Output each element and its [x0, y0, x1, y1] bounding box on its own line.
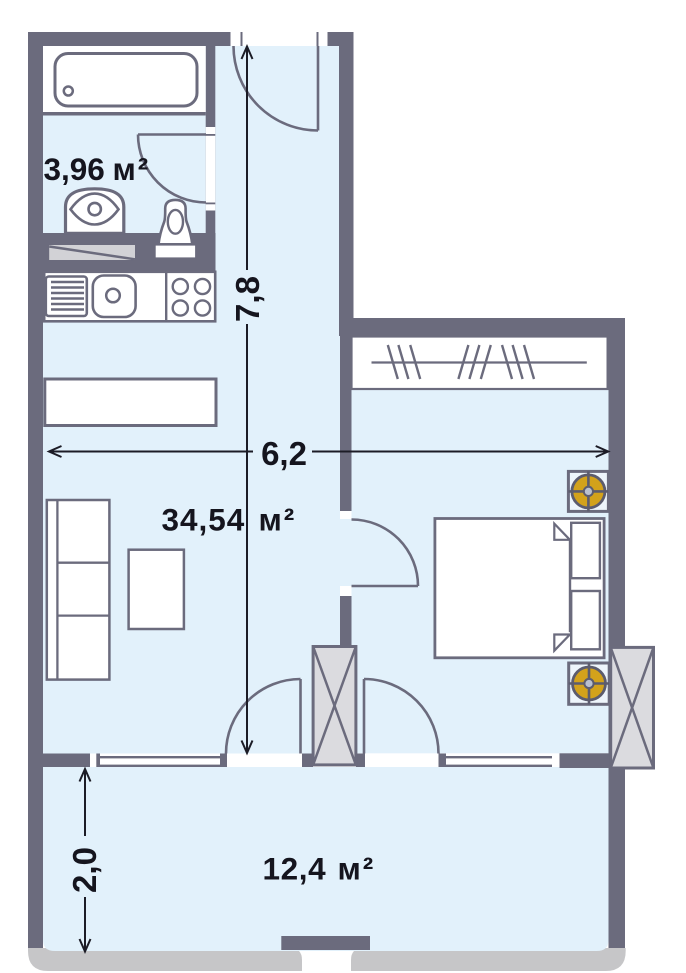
svg-text:м²: м² — [259, 502, 297, 538]
svg-text:12,4: 12,4 — [263, 851, 327, 887]
svg-text:3,96: 3,96 — [44, 151, 105, 187]
svg-text:м²: м² — [113, 151, 151, 187]
svg-text:м²: м² — [338, 851, 376, 887]
svg-text:7,8: 7,8 — [229, 276, 266, 322]
svg-text:2,0: 2,0 — [66, 847, 103, 893]
svg-text:6,2: 6,2 — [261, 435, 307, 472]
svg-text:34,54: 34,54 — [162, 502, 246, 538]
